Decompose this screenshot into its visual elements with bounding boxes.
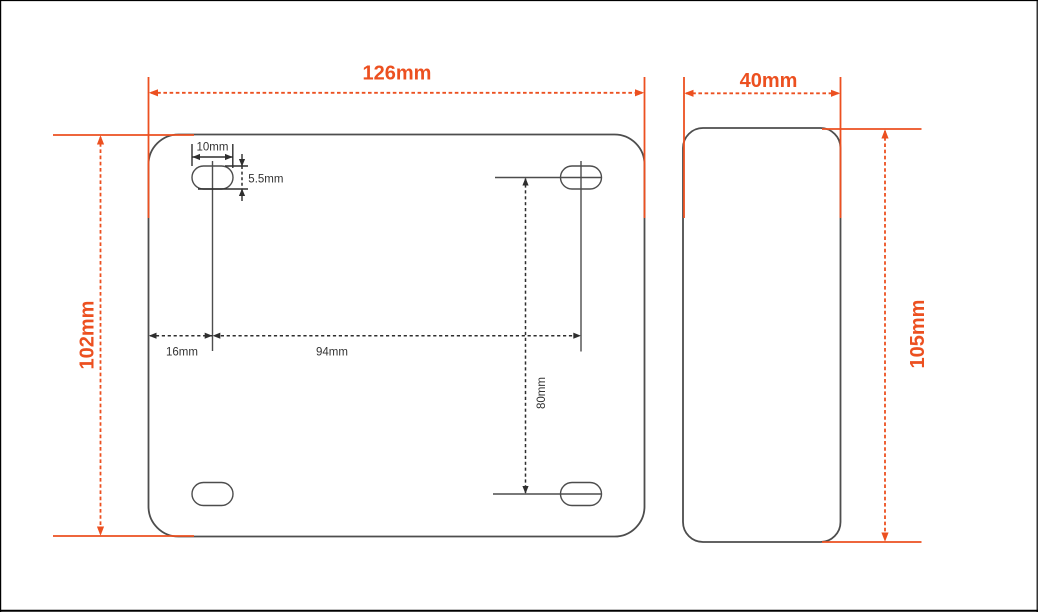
- svg-text:16mm: 16mm: [166, 347, 198, 359]
- svg-text:102mm: 102mm: [76, 301, 98, 370]
- svg-text:94mm: 94mm: [316, 347, 348, 359]
- svg-text:126mm: 126mm: [363, 63, 432, 85]
- svg-text:80mm: 80mm: [536, 377, 548, 409]
- svg-text:10mm: 10mm: [197, 142, 229, 154]
- svg-text:105mm: 105mm: [907, 300, 929, 369]
- svg-text:5.5mm: 5.5mm: [248, 173, 283, 185]
- svg-text:40mm: 40mm: [740, 70, 798, 92]
